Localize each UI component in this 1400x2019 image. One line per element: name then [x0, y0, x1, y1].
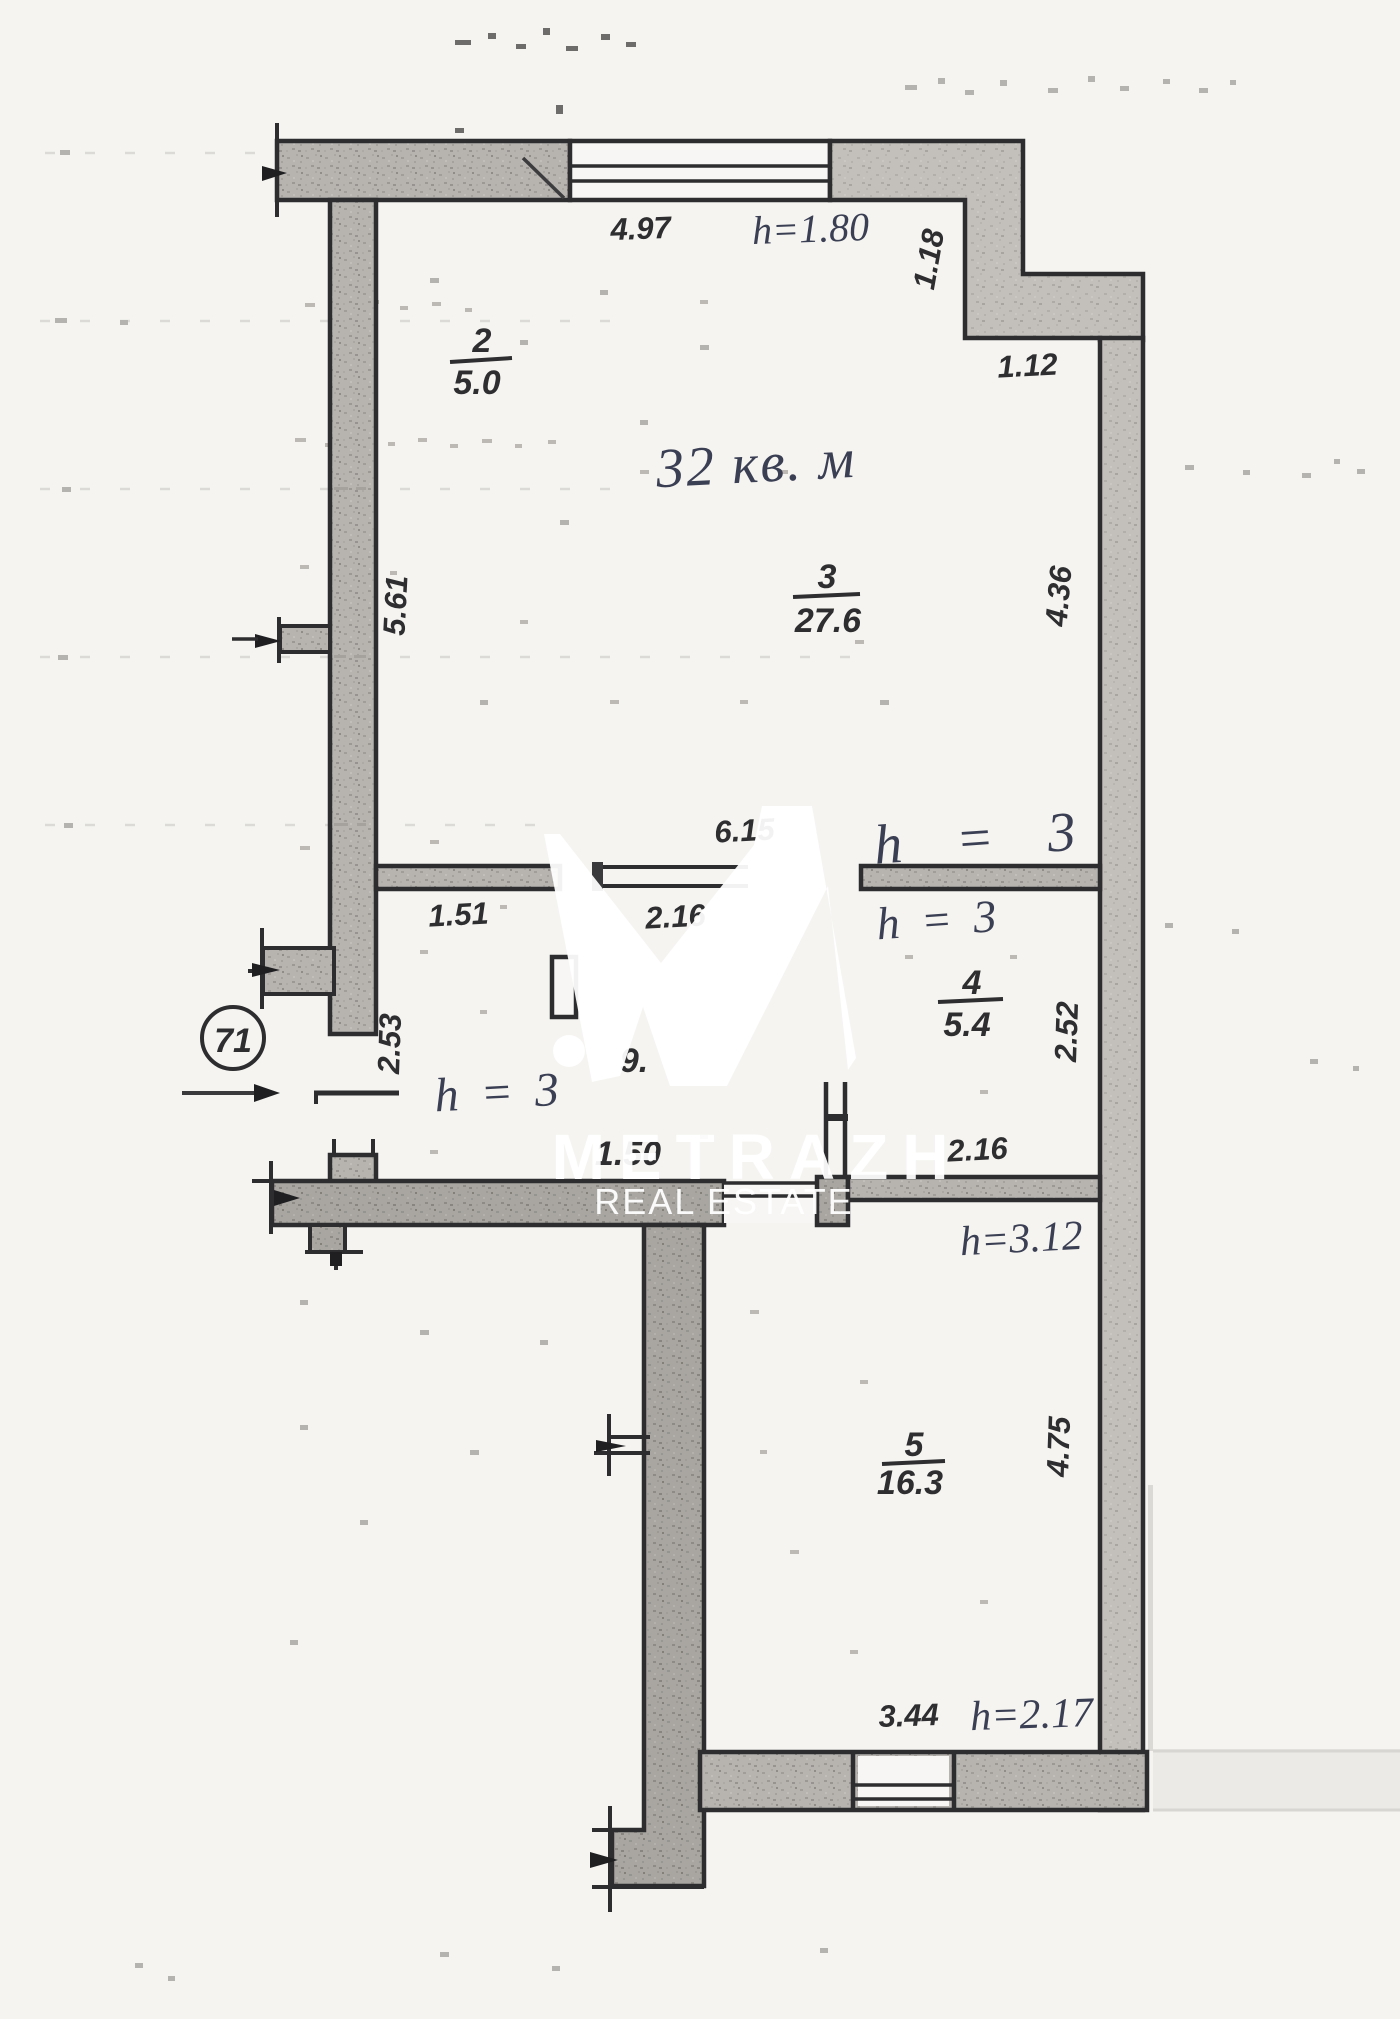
svg-text:2.53: 2.53 — [371, 1013, 408, 1076]
svg-text:1.12: 1.12 — [996, 346, 1058, 384]
svg-text:71: 71 — [214, 1022, 252, 1060]
svg-text:3.44: 3.44 — [878, 1697, 940, 1734]
svg-text:5: 5 — [905, 1426, 925, 1464]
svg-text:h=1.80: h=1.80 — [751, 204, 869, 253]
svg-text:4.75: 4.75 — [1040, 1415, 1077, 1478]
svg-text:h = 3: h = 3 — [875, 890, 1003, 950]
svg-text:REAL ESTATE: REAL ESTATE — [594, 1181, 853, 1222]
svg-text:4: 4 — [962, 964, 982, 1002]
svg-text:h = 3: h = 3 — [433, 1063, 565, 1123]
svg-text:1.51: 1.51 — [427, 895, 489, 933]
svg-text:2: 2 — [472, 322, 492, 360]
svg-text:h=2.17: h=2.17 — [969, 1690, 1095, 1740]
svg-text:27.6: 27.6 — [794, 602, 862, 640]
svg-text:h=3.12: h=3.12 — [959, 1213, 1084, 1265]
svg-text:2.52: 2.52 — [1048, 1001, 1085, 1064]
svg-text:5.0: 5.0 — [453, 364, 500, 402]
svg-text:32 кв. м: 32 кв. м — [653, 428, 857, 500]
svg-text:4.36: 4.36 — [1038, 564, 1078, 629]
svg-text:5.61: 5.61 — [376, 574, 414, 636]
svg-text:3: 3 — [818, 558, 837, 596]
svg-text:5.4: 5.4 — [943, 1006, 990, 1044]
svg-text:16.3: 16.3 — [877, 1464, 943, 1502]
svg-text:4.97: 4.97 — [609, 210, 673, 247]
